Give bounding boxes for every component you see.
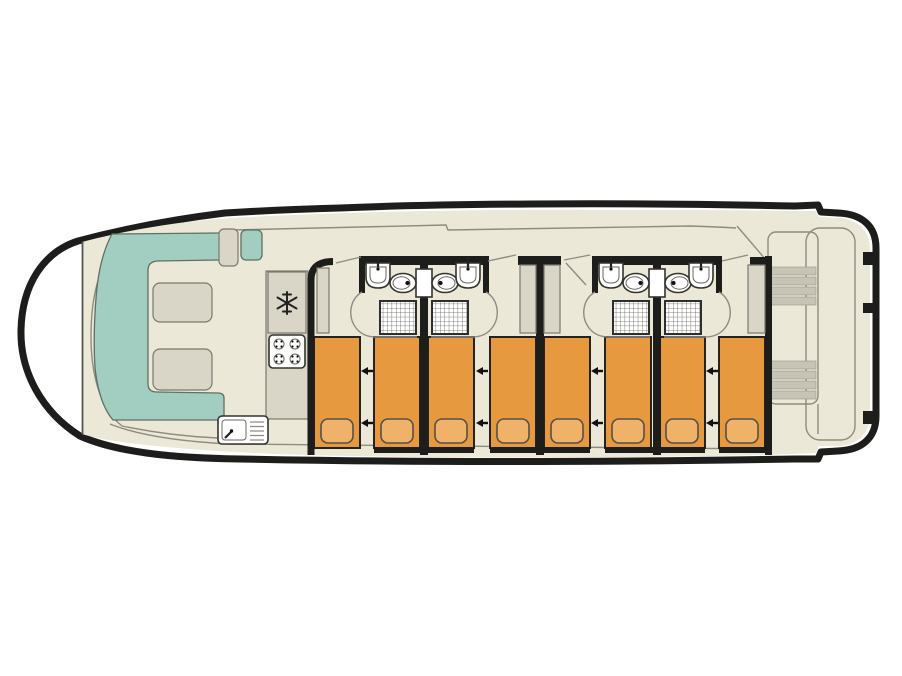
bed-pillow <box>726 419 758 443</box>
bed-pillow <box>435 419 467 443</box>
stair-step <box>770 371 816 379</box>
stair-step <box>770 297 816 305</box>
bed-pillow <box>381 419 413 443</box>
bed-pillow <box>666 419 698 443</box>
boat-deck-plan <box>0 0 902 676</box>
bed-pillow <box>497 419 529 443</box>
stair-step <box>770 277 816 285</box>
stair-step <box>770 287 816 295</box>
helm-seat <box>219 229 238 266</box>
stair-step <box>770 381 816 389</box>
stair-step <box>770 267 816 275</box>
hull-fender-notch <box>863 411 876 424</box>
stair-step <box>770 361 816 369</box>
wardrobe <box>520 265 536 333</box>
wardrobe <box>748 265 765 333</box>
stair-step <box>770 391 816 399</box>
bed-pillow <box>612 419 644 443</box>
mid-bulkhead <box>536 256 544 455</box>
lounge-table <box>153 283 212 322</box>
hob-icon <box>269 335 305 368</box>
wardrobe <box>544 265 560 333</box>
lounge-table <box>153 349 212 390</box>
aft-bulkhead <box>765 256 772 455</box>
wardrobe <box>317 268 329 333</box>
hull-fender-notch <box>863 252 876 265</box>
floor-plan-canvas <box>0 0 902 676</box>
galley-sink-icon <box>218 416 268 444</box>
outer-wall-segment <box>719 447 768 453</box>
bed-pillow <box>321 419 353 443</box>
bed-pillow <box>551 419 583 443</box>
helm-seat <box>241 230 262 260</box>
hull-fender-notch <box>863 303 876 313</box>
